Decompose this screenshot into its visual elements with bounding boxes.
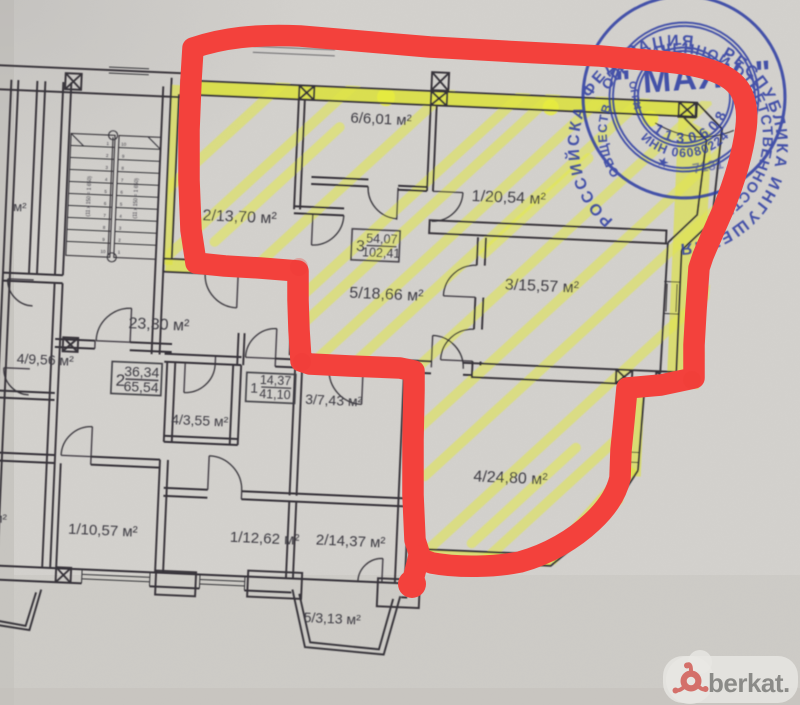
svg-text:1: 1 xyxy=(250,380,259,396)
svg-text:3/15,57 м²: 3/15,57 м² xyxy=(504,277,579,297)
svg-text:4/3,55 м²: 4/3,55 м² xyxy=(171,411,229,429)
svg-text:5/3,13 м²: 5/3,13 м² xyxy=(303,609,361,627)
svg-text:10: 10 xyxy=(121,142,127,147)
svg-text:2/14,37 м²: 2/14,37 м² xyxy=(315,532,385,552)
svg-text:1/10,57 м²: 1/10,57 м² xyxy=(68,521,138,541)
svg-text:65,54: 65,54 xyxy=(123,378,159,396)
svg-text:10: 10 xyxy=(100,249,106,254)
svg-text:4/24,80 м²: 4/24,80 м² xyxy=(473,468,548,488)
svg-text:4/9,56 м²: 4/9,56 м² xyxy=(16,350,74,368)
svg-text:м²: м² xyxy=(13,199,28,215)
svg-text:41,10: 41,10 xyxy=(259,387,291,402)
svg-text:54,07: 54,07 xyxy=(366,231,398,246)
svg-text:23,30 м²: 23,30 м² xyxy=(128,315,190,335)
svg-text:1/20,54 м²: 1/20,54 м² xyxy=(471,188,546,208)
svg-text:102,41: 102,41 xyxy=(362,245,401,261)
svg-text:5/18,66 м²: 5/18,66 м² xyxy=(349,285,424,305)
svg-text:1/12,62 м²: 1/12,62 м² xyxy=(230,529,300,549)
svg-text:2/13,70 м²: 2/13,70 м² xyxy=(202,207,277,227)
svg-text:berkat.: berkat. xyxy=(708,668,790,698)
svg-text:6/6,01 м²: 6/6,01 м² xyxy=(350,110,412,130)
svg-text:14,37: 14,37 xyxy=(260,373,292,388)
svg-text:3/7,43 м²: 3/7,43 м² xyxy=(305,391,363,409)
